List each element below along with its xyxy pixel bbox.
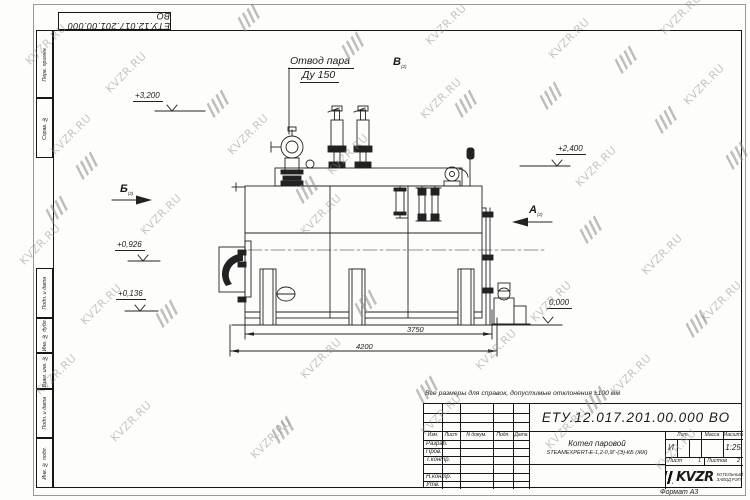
tb-line [493, 404, 494, 489]
tb-sheets-cell: Листов2 [704, 457, 743, 465]
tb-row-razrab: Разраб. [424, 440, 462, 448]
steam-outlet-dn-label: Ду 150 [300, 69, 339, 83]
tb-product-name: Котел паровой STEAMEXPERT-Е-1,2-0,9Г-(Э)… [529, 431, 665, 464]
kvzr-logo-icon [665, 471, 673, 484]
kvzr-logo-text: KVZR [676, 470, 714, 485]
kvzr-logo-subtext: КОТЕЛЬНЫЙ ЗАВОД РЭП [717, 472, 743, 482]
tb-col-data: Дата [513, 431, 529, 440]
tb-lit-label: Лит. [665, 431, 701, 439]
tb-row-tkontr: Т.контр. [424, 456, 462, 464]
tb-line [689, 439, 690, 457]
drawing-sheet: { "doc_number": "ЕТУ.12.017.201.00.000 В… [0, 0, 750, 500]
tb-line [424, 413, 529, 414]
tb-doc-number: ЕТУ.12.017.201.00.000 ВО [529, 404, 743, 431]
tb-line [513, 404, 514, 489]
elevation-0926: +0,926 [115, 240, 145, 251]
tb-lit-value: И [665, 439, 677, 457]
view-label-v: В(2) [393, 56, 406, 69]
title-block: Изм. Лист N докум. Подп. Дата Разраб. Пр… [423, 403, 742, 488]
tb-line [677, 439, 678, 457]
elevation-3200: +3,200 [133, 91, 163, 102]
tb-row-prov: Пров. [424, 448, 462, 456]
dimension-4200: 4200 [356, 342, 373, 351]
tb-col-izm: Изм. [424, 431, 442, 440]
tb-col-podp: Подп. [493, 431, 513, 440]
tb-line [424, 464, 665, 465]
view-label-b: Б(2) [120, 183, 133, 196]
tb-sheet-cell: Лист1 [665, 457, 704, 465]
tb-row-nkontr: Н.контр. [424, 473, 462, 481]
tb-scale-label: Масштаб [723, 431, 743, 439]
steam-outlet-label: Отвод пара [288, 55, 354, 69]
elevation-0136: +0,136 [116, 289, 146, 300]
tb-company-cell: KVZR КОТЕЛЬНЫЙ ЗАВОД РЭП [665, 465, 743, 489]
tb-col-ndokum: N докум. [460, 431, 493, 440]
tb-scale-value: 1:25 [723, 439, 743, 457]
tb-col-list: Лист [442, 431, 460, 440]
tb-mass-label: Масса [701, 431, 723, 439]
dimension-3750: 3750 [407, 325, 424, 334]
product-name-line2: STEAMEXPERT-Е-1,2-0,9Г-(Э)-КБ (ЖК) [547, 450, 648, 456]
tb-line [424, 422, 529, 423]
tolerance-note: Все размеры для справок, допустимые откл… [425, 390, 620, 397]
elevation-2400: +2,400 [556, 144, 586, 155]
format-label: Формат А3 [660, 489, 698, 496]
product-name-line1: Котел паровой [568, 439, 625, 448]
view-label-a: А(2) [529, 204, 542, 217]
elevation-0000: 0,000 [547, 298, 572, 309]
tb-row-utv: Утв. [424, 481, 462, 489]
